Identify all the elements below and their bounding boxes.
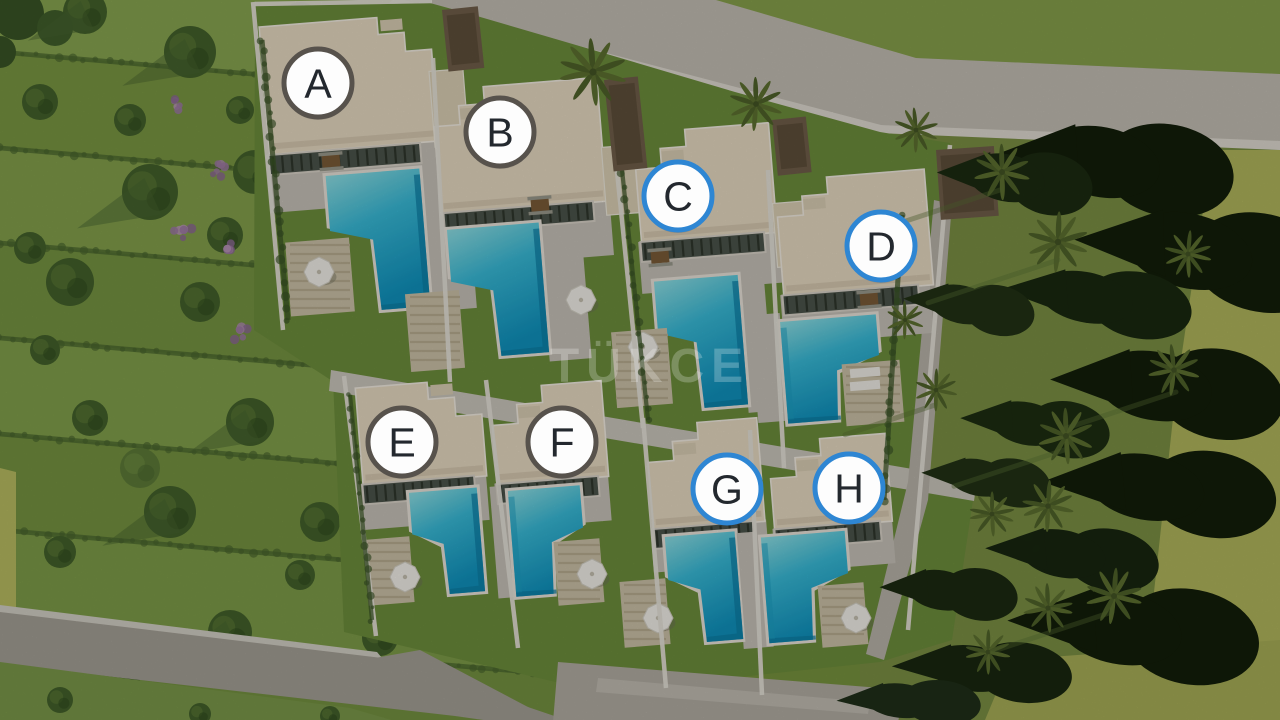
svg-text:B: B xyxy=(486,110,513,156)
svg-text:TÜKCE: TÜKCE xyxy=(550,340,750,393)
svg-text:F: F xyxy=(549,420,574,466)
svg-text:C: C xyxy=(663,174,693,220)
svg-text:A: A xyxy=(304,61,332,107)
svg-text:H: H xyxy=(834,466,864,512)
svg-text:E: E xyxy=(388,420,415,466)
svg-text:D: D xyxy=(866,224,896,270)
svg-text:G: G xyxy=(711,467,743,513)
